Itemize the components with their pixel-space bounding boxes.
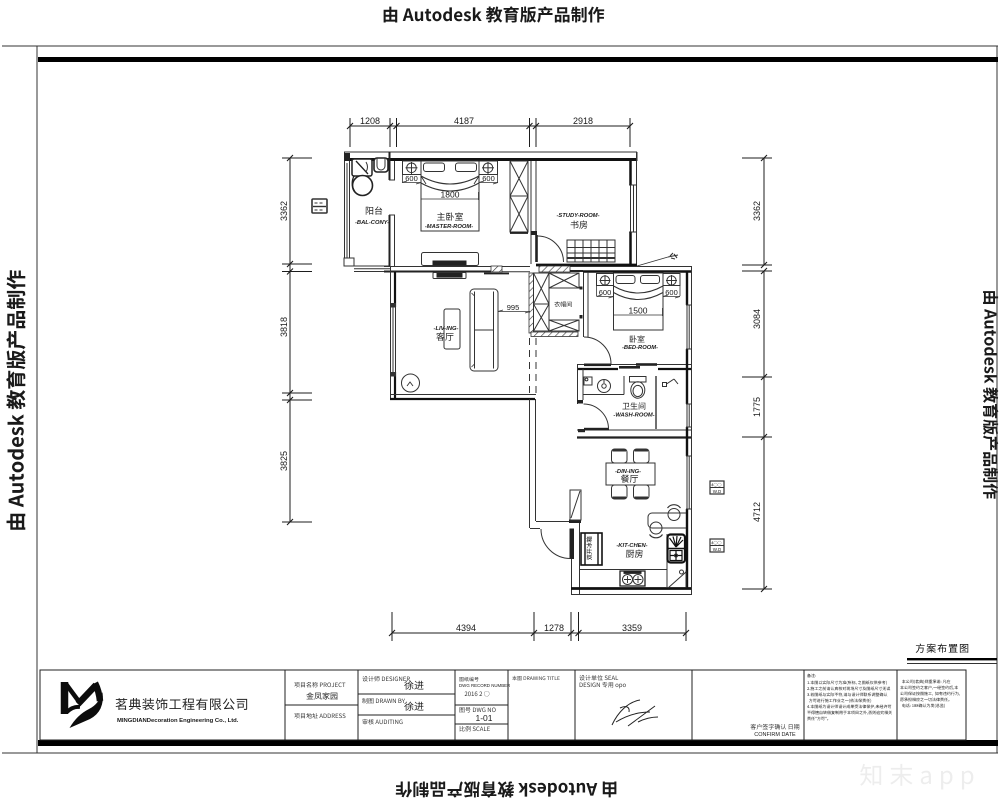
svg-text:2918: 2918 xyxy=(573,116,593,126)
svg-text:3084: 3084 xyxy=(752,309,762,329)
svg-text:4187: 4187 xyxy=(454,116,474,126)
svg-text:600: 600 xyxy=(482,174,495,183)
svg-text:1500: 1500 xyxy=(629,306,648,316)
svg-text:3362: 3362 xyxy=(279,201,289,221)
svg-text:600: 600 xyxy=(665,288,678,297)
svg-text:-MASTER-ROOM-: -MASTER-ROOM- xyxy=(425,224,473,230)
svg-text:-WASH-ROOM-: -WASH-ROOM- xyxy=(613,413,654,419)
svg-text:1278: 1278 xyxy=(544,623,564,633)
svg-text:1208: 1208 xyxy=(360,116,380,126)
svg-text:-DIN-ING-: -DIN-ING- xyxy=(615,469,641,475)
svg-text:1775: 1775 xyxy=(752,397,762,417)
svg-text:DWG RECORD NUMBER: DWG RECORD NUMBER xyxy=(459,683,510,688)
svg-text:3818: 3818 xyxy=(279,317,289,337)
svg-text:3825: 3825 xyxy=(279,451,289,471)
svg-text:600: 600 xyxy=(599,288,612,297)
svg-text:4394: 4394 xyxy=(456,623,476,633)
svg-text:-STUDY-ROOM-: -STUDY-ROOM- xyxy=(556,213,599,219)
svg-text:600: 600 xyxy=(405,174,418,183)
svg-text:W.D: W.D xyxy=(713,547,722,552)
svg-text:1-01: 1-01 xyxy=(475,713,492,723)
svg-text:W.D: W.D xyxy=(713,489,722,494)
svg-text:3362: 3362 xyxy=(752,201,762,221)
svg-text:3359: 3359 xyxy=(622,623,642,633)
svg-text:4712: 4712 xyxy=(752,502,762,522)
svg-text:-LIV-ING-: -LIV-ING- xyxy=(434,326,459,332)
svg-text:995: 995 xyxy=(507,303,520,312)
svg-text:-BAL-CONY-: -BAL-CONY- xyxy=(355,220,389,226)
svg-text:CONFIRM DATE: CONFIRM DATE xyxy=(754,732,796,738)
svg-text:1800: 1800 xyxy=(441,190,460,200)
svg-text:-KIT-CHEN-: -KIT-CHEN- xyxy=(616,543,647,549)
svg-text:MINGDIANDecoration Engineering: MINGDIANDecoration Engineering Co., Ltd. xyxy=(117,718,239,724)
svg-text:-BED-ROOM-: -BED-ROOM- xyxy=(622,345,658,351)
